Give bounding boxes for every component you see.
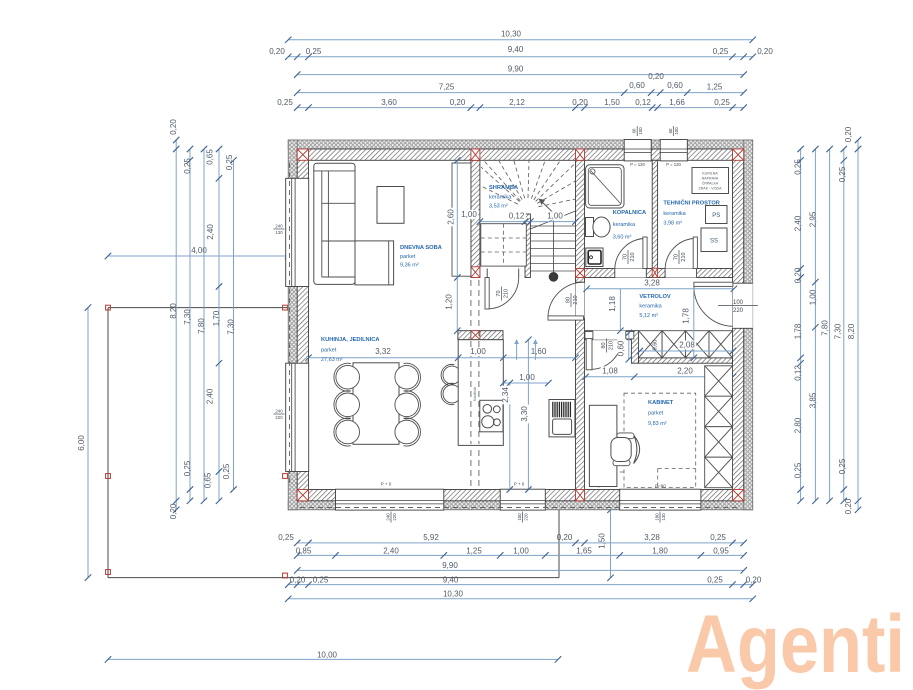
svg-text:KABINET: KABINET [648,400,674,406]
svg-text:180: 180 [655,513,660,521]
svg-text:240: 240 [386,513,391,521]
svg-text:220: 220 [523,513,528,521]
svg-text:0,25: 0,25 [277,98,293,107]
svg-text:1,65: 1,65 [576,547,592,556]
svg-text:1,08: 1,08 [602,366,618,375]
svg-text:1,50: 1,50 [598,533,607,549]
svg-text:P=90: P=90 [655,484,666,489]
svg-text:0,25: 0,25 [838,458,847,474]
svg-text:0,25: 0,25 [794,462,803,478]
svg-text:1,80: 1,80 [652,547,668,556]
svg-text:0,20: 0,20 [169,119,178,135]
svg-text:130: 130 [275,230,283,235]
svg-text:3,32: 3,32 [375,347,391,356]
svg-text:3,28: 3,28 [644,279,660,288]
svg-text:10,00: 10,00 [317,651,338,660]
svg-text:7,25: 7,25 [439,83,455,92]
svg-text:0,20: 0,20 [648,72,664,81]
svg-text:0,60: 0,60 [667,81,683,90]
svg-text:0,65: 0,65 [204,472,213,488]
svg-text:0,60: 0,60 [616,340,625,356]
svg-text:KOPALNICA: KOPALNICA [613,210,646,216]
svg-text:1,25: 1,25 [466,547,482,556]
svg-text:1,60: 1,60 [531,347,547,356]
svg-text:0,12: 0,12 [509,212,525,221]
svg-text:1,00: 1,00 [513,547,529,556]
svg-text:6,00: 6,00 [77,435,86,451]
svg-text:9,40: 9,40 [508,45,524,54]
svg-text:DNEVNA SOBA: DNEVNA SOBA [400,245,442,251]
svg-text:0,60: 0,60 [652,340,658,351]
svg-text:2,80: 2,80 [794,417,803,433]
svg-text:0,20: 0,20 [757,47,773,56]
svg-text:10,30: 10,30 [443,590,464,599]
svg-text:parket: parket [400,254,416,260]
svg-text:keramika: keramika [639,304,662,310]
svg-text:0,20: 0,20 [844,126,853,142]
svg-text:2,95: 2,95 [808,211,817,227]
svg-text:7,30: 7,30 [183,309,192,325]
svg-text:5,12 m²: 5,12 m² [639,313,658,319]
svg-text:ZRAK - VODA: ZRAK - VODA [699,187,723,191]
svg-text:0,20: 0,20 [746,576,762,585]
svg-text:parket: parket [321,348,337,354]
svg-text:0,20: 0,20 [844,498,853,514]
svg-text:7,80: 7,80 [821,320,830,336]
svg-text:1,00: 1,00 [461,210,477,219]
svg-text:PS: PS [712,213,720,219]
svg-text:80: 80 [601,342,607,348]
svg-text:1,00: 1,00 [547,212,563,221]
svg-text:1,00: 1,00 [519,373,535,382]
svg-text:0,25: 0,25 [714,98,730,107]
svg-text:0,25: 0,25 [313,576,329,585]
svg-text:3,60: 3,60 [381,98,397,107]
svg-text:8,20: 8,20 [847,323,856,339]
svg-text:Agenti: Agenti [686,599,905,690]
svg-text:0,25: 0,25 [713,47,729,56]
svg-text:hladilnik: hladilnik [472,387,477,401]
svg-text:9,36 m²: 9,36 m² [400,263,419,269]
svg-text:0,25: 0,25 [183,460,192,476]
svg-text:70: 70 [623,254,629,260]
svg-text:9,40: 9,40 [443,576,459,585]
svg-text:1,66: 1,66 [669,98,685,107]
svg-text:0,12: 0,12 [794,365,803,381]
svg-text:ČRPALKA: ČRPALKA [702,181,719,186]
svg-text:2,34: 2,34 [501,387,510,403]
svg-text:0,25: 0,25 [710,533,726,542]
svg-text:0,20: 0,20 [269,47,285,56]
svg-text:0,20: 0,20 [450,98,466,107]
svg-text:60: 60 [632,128,637,133]
svg-text:7,80: 7,80 [197,318,206,334]
svg-text:3,30: 3,30 [520,406,529,422]
svg-text:210: 210 [504,289,510,298]
svg-text:SS: SS [710,239,718,245]
svg-text:0,60: 0,60 [629,81,645,90]
svg-text:0,20: 0,20 [169,503,178,519]
svg-text:220: 220 [392,513,397,521]
svg-text:0,25: 0,25 [278,533,294,542]
svg-text:1,18: 1,18 [608,296,617,312]
svg-text:3,60 m²: 3,60 m² [613,235,632,241]
svg-text:240: 240 [275,409,283,414]
svg-text:1,20: 1,20 [444,294,453,310]
svg-text:1,50: 1,50 [604,98,620,107]
svg-text:3,85: 3,85 [808,392,817,408]
svg-text:5,92: 5,92 [423,533,439,542]
svg-text:2,08: 2,08 [679,341,695,350]
svg-text:KUHINJA, JEDILNICA: KUHINJA, JEDILNICA [321,337,379,343]
svg-text:9,83 m²: 9,83 m² [648,421,667,427]
svg-text:80: 80 [566,297,572,303]
svg-text:0,20: 0,20 [557,533,573,542]
svg-text:0,25: 0,25 [306,47,322,56]
svg-text:0,25: 0,25 [794,159,803,175]
svg-text:3,53 m²: 3,53 m² [489,204,508,210]
svg-text:0,25: 0,25 [707,576,723,585]
svg-text:parket: parket [648,411,664,417]
svg-text:4,00: 4,00 [191,246,207,255]
svg-text:keramika: keramika [663,211,686,217]
svg-text:8,20: 8,20 [169,303,178,319]
svg-text:240: 240 [275,224,283,229]
svg-text:P = 120: P = 120 [630,162,645,167]
svg-text:0,20: 0,20 [290,576,306,585]
svg-text:7,30: 7,30 [834,323,843,339]
svg-text:0,65: 0,65 [206,149,215,165]
svg-text:NAPRAVA: NAPRAVA [702,177,719,181]
svg-text:2,60: 2,60 [446,209,455,225]
svg-text:2,40: 2,40 [383,547,399,556]
svg-text:3,28: 3,28 [644,533,660,542]
svg-text:1,00: 1,00 [470,347,486,356]
svg-text:2,20: 2,20 [677,366,693,375]
svg-text:70: 70 [496,290,502,296]
svg-text:0,25: 0,25 [183,158,192,174]
svg-text:210: 210 [630,252,636,261]
svg-text:100: 100 [733,300,744,306]
svg-text:P + 0: P + 0 [381,482,392,487]
svg-text:9,90: 9,90 [508,65,524,74]
svg-text:2,40: 2,40 [794,215,803,231]
svg-text:KURILNA: KURILNA [702,172,718,176]
svg-text:0,12: 0,12 [635,98,651,107]
svg-text:0,95: 0,95 [713,547,729,556]
svg-text:100: 100 [638,127,643,135]
svg-text:0,20: 0,20 [572,98,588,107]
svg-text:2,40: 2,40 [206,388,215,404]
svg-text:220: 220 [733,308,744,314]
svg-text:70: 70 [674,254,680,260]
svg-text:1,78: 1,78 [681,308,690,324]
svg-text:2,40: 2,40 [206,224,215,240]
svg-text:100: 100 [674,127,679,135]
svg-text:P + 0: P + 0 [514,482,525,487]
svg-text:0,25: 0,25 [838,166,847,182]
svg-text:1,25: 1,25 [707,83,723,92]
svg-text:100: 100 [517,513,522,521]
svg-text:2,12: 2,12 [509,98,525,107]
svg-text:1,00: 1,00 [808,289,817,305]
svg-text:0,25: 0,25 [222,463,231,479]
svg-text:keramika: keramika [613,222,636,228]
svg-text:7,30: 7,30 [227,319,236,335]
svg-text:9,90: 9,90 [442,561,458,570]
svg-text:210: 210 [573,295,579,304]
svg-text:220: 220 [275,415,283,420]
svg-text:0,20: 0,20 [794,267,803,283]
svg-text:1,78: 1,78 [794,323,803,339]
svg-text:210: 210 [609,341,615,350]
svg-text:1,70: 1,70 [212,310,221,326]
svg-text:0,25: 0,25 [225,154,234,170]
svg-text:10,30: 10,30 [501,30,522,39]
svg-text:VETROLOV: VETROLOV [639,294,670,300]
svg-text:0,85: 0,85 [296,547,312,556]
svg-text:60: 60 [668,128,673,133]
svg-text:130: 130 [661,513,666,521]
svg-text:210: 210 [681,252,687,261]
svg-text:3,98 m²: 3,98 m² [663,221,682,227]
svg-text:P = 120: P = 120 [666,162,681,167]
